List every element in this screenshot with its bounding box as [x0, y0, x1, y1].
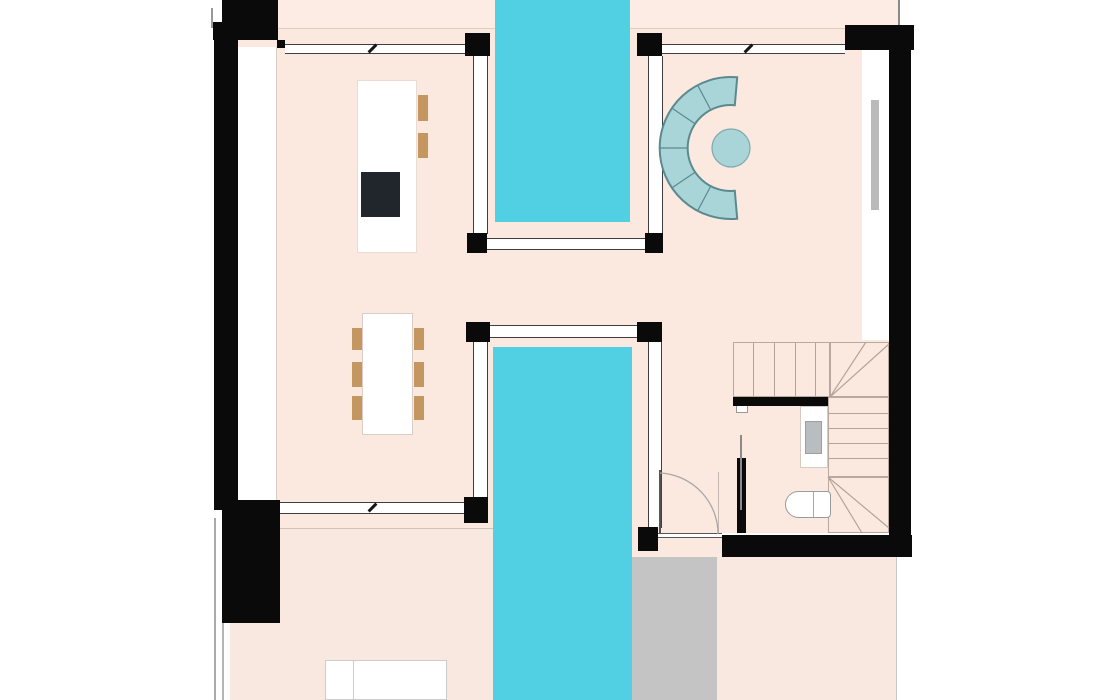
dining-chair [352, 396, 362, 420]
pool-lower [493, 347, 632, 700]
terrace-gray-deck [632, 557, 717, 700]
dining-chair [352, 362, 362, 387]
glazing-band-pool1-left [473, 56, 488, 234]
wall-band-nub [277, 40, 285, 48]
post-pool1-bottom-left [467, 233, 487, 253]
floor-plan [0, 0, 1120, 700]
terrace-right-edge-line [896, 557, 897, 700]
curved-glass-feature [650, 65, 760, 230]
curved-glass-center-disc [712, 129, 750, 167]
bay-window-bar [871, 100, 879, 210]
dining-chair [414, 328, 424, 350]
pool-upper [495, 0, 630, 222]
dining-chair [352, 328, 362, 350]
post-pool1-top-left [465, 33, 490, 56]
left-cavity-edge-line [276, 47, 277, 503]
kitchen-island [357, 80, 417, 253]
terrace-left-edge-line [280, 528, 493, 529]
post-pool2-top-left [466, 322, 490, 342]
wall-left [214, 28, 238, 510]
bed [325, 660, 447, 700]
wall-top-right-block [845, 25, 914, 50]
exterior-line-bottom-left-inner [222, 623, 224, 700]
post-pool1-top-right [637, 33, 662, 56]
glazing-band-pool2-top [466, 325, 662, 338]
glazing-band-pool2-left [473, 342, 488, 498]
exterior-line-bottom-left-outer [214, 518, 216, 700]
exterior-line-top-right [898, 0, 900, 26]
post-pool1-bottom-right [645, 233, 663, 253]
stair-winder-lines [828, 342, 889, 533]
dining-chair [414, 362, 424, 387]
kitchen-stool [418, 133, 428, 158]
dining-chair [414, 396, 424, 420]
dining-table [362, 313, 413, 435]
bed-divider-line [353, 661, 354, 700]
glazing-band-pool1-bottom [470, 238, 660, 250]
kitchen-stool [418, 95, 428, 121]
door-swing-arc [660, 473, 718, 534]
terrace-right-floor [717, 557, 897, 700]
kitchen-cooktop [361, 172, 400, 217]
stair-and-door-arcs [650, 330, 912, 540]
post-pool2-bottom-left [464, 497, 488, 523]
wall-bottom-left-block [222, 500, 280, 623]
left-wall-cavity [238, 47, 277, 503]
